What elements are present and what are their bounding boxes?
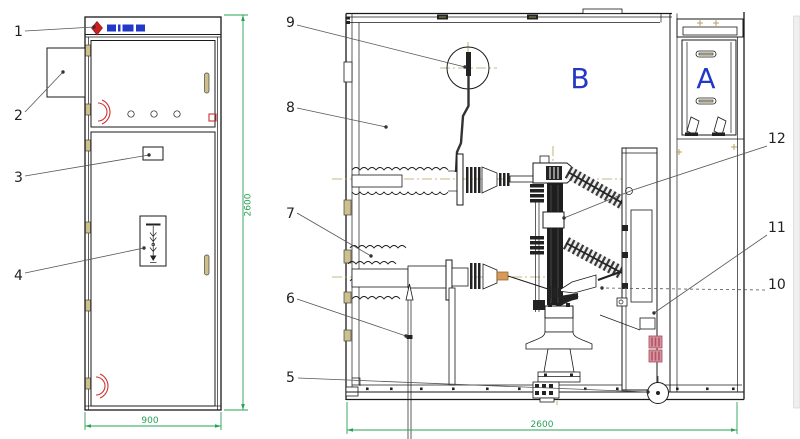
compartment-b-label: B <box>570 62 589 95</box>
lower-bushing <box>348 246 548 386</box>
callout-8: 8 <box>286 100 295 116</box>
door-hinges <box>86 45 91 389</box>
upper-door-handle[interactable] <box>205 73 210 93</box>
callout-10: 10 <box>768 277 786 293</box>
nameplate <box>143 147 163 160</box>
side-mounted-box <box>47 48 85 97</box>
pole-disc-stacks <box>530 184 545 310</box>
upper-bushing <box>352 154 534 205</box>
brand-logo-text-icon <box>107 25 145 32</box>
callout-12: 12 <box>768 131 786 147</box>
callout-7: 7 <box>286 206 295 222</box>
lower-door <box>91 132 215 406</box>
pole-label-plate <box>543 212 564 228</box>
lower-door-handle[interactable] <box>205 255 210 275</box>
mimic-panel <box>140 216 166 266</box>
centerlines <box>332 42 640 405</box>
side-view: A B <box>286 9 800 439</box>
callout-5: 5 <box>286 370 295 386</box>
right-edge-panel <box>794 16 800 408</box>
side-width-dimension: 2600 <box>347 402 737 434</box>
callout-3: 3 <box>14 170 23 186</box>
brand-logo <box>92 22 146 36</box>
front-width-dimension: 900 <box>85 412 221 430</box>
sensor-assembly <box>447 47 489 172</box>
front-height-dimension: 2600 <box>224 15 254 410</box>
compartment-a-label: A <box>696 62 715 95</box>
callout-11: 11 <box>768 220 786 236</box>
callout-6: 6 <box>286 291 295 307</box>
callout-1: 1 <box>14 24 23 40</box>
front-width-dim-text: 900 <box>141 416 158 426</box>
front-view: 2600 900 1 2 3 4 <box>14 15 254 430</box>
side-width-dim-text: 2600 <box>531 420 554 430</box>
front-height-dim-text: 2600 <box>244 193 254 216</box>
hanging-rod <box>406 284 413 439</box>
callout-9: 9 <box>286 15 295 31</box>
lv-compartment: A <box>670 12 744 400</box>
callout-2: 2 <box>14 108 23 124</box>
callout-4: 4 <box>14 268 23 284</box>
